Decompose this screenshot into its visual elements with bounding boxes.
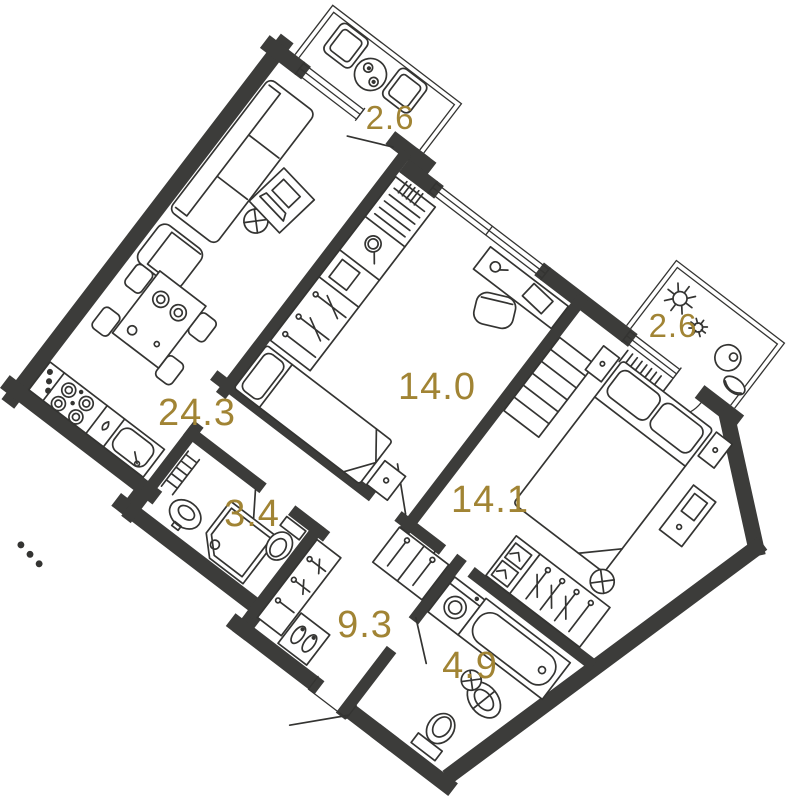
bowl-icon: [721, 373, 749, 399]
room-label-bath34: 3.4: [224, 493, 280, 535]
room-label-balcony-right: 2.6: [649, 307, 698, 344]
toilet-bath49-icon: [411, 707, 462, 761]
door-leaf-bath49: [398, 618, 445, 664]
planter-icon: [710, 340, 746, 376]
floor-plan-svg: 2.6 24.3 14.0 2.6 14.1 3.4 9.3 4.9: [0, 0, 787, 806]
door-leaf-entrance: [290, 690, 349, 750]
room-label-bath49: 4.9: [442, 645, 498, 687]
room-label-living: 24.3: [158, 392, 236, 434]
room-label-balcony-top: 2.6: [366, 99, 415, 136]
dresser-icon: [659, 485, 715, 546]
room-label-bedroom1: 14.0: [398, 366, 476, 408]
room-label-corridor: 9.3: [337, 604, 393, 646]
riser-marks: [15, 541, 45, 567]
room-label-bedroom2: 14.1: [451, 479, 529, 521]
floorplan-page: { "plan": { "background": "#ffffff", "wa…: [0, 0, 787, 806]
